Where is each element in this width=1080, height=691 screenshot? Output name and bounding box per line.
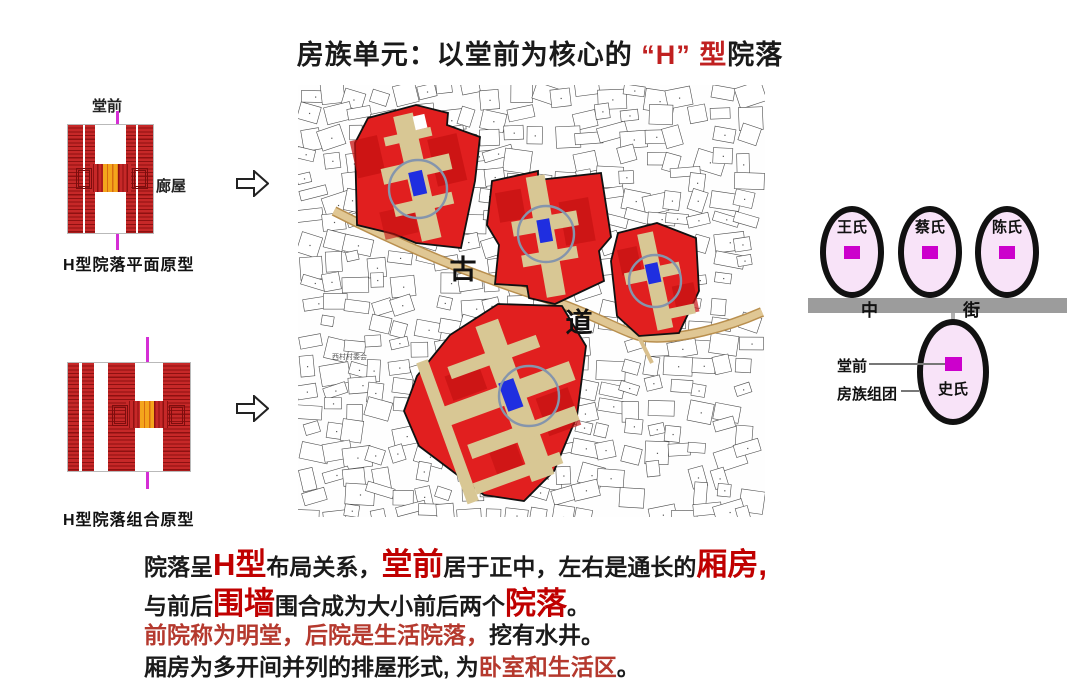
- text-segment: 院落: [727, 40, 783, 70]
- right-arrow-icon: [236, 395, 269, 422]
- cadastral-map: 古 道 西村村委会: [298, 85, 765, 517]
- text-segment: 房族单元：以堂前为核心的: [297, 40, 633, 70]
- text-segment: 厢房为多开间并列的排屋形式, 为: [144, 654, 479, 680]
- hall-bar: [126, 401, 168, 428]
- clan-name: 陈氏: [975, 216, 1039, 237]
- page-title: 房族单元：以堂前为核心的 “H” 型院落: [0, 33, 1080, 72]
- right-arrow-icon: [236, 170, 269, 197]
- text-segment: 厢房,: [696, 547, 767, 582]
- map-label-village-committee: 西村村委会: [332, 352, 367, 361]
- clan-name: 王氏: [820, 216, 884, 237]
- h-plan-diagram: [68, 125, 153, 233]
- roof-strip: [82, 363, 94, 471]
- text-segment: 。: [617, 654, 640, 680]
- hall-square-marker: [945, 357, 962, 371]
- spiral-motif: [169, 405, 185, 426]
- clan-name: 史氏: [917, 378, 989, 399]
- street-char-zhong: 中: [861, 296, 878, 321]
- hall-square-marker: [922, 246, 938, 259]
- text-segment: H型: [213, 547, 266, 582]
- street-char-jie: 街: [963, 296, 980, 321]
- slide: 房族单元：以堂前为核心的 “H” 型院落 堂前 廊屋 H型院落平面原型 H型院落…: [0, 0, 1080, 691]
- h-combo-diagram: [68, 363, 190, 471]
- clan-name: 蔡氏: [898, 216, 962, 237]
- body-text-line-3: 前院称为明堂，后院是生活院落，挖有水井。: [144, 616, 604, 650]
- text-segment: 居于正中，左右是通长的: [443, 554, 696, 580]
- text-segment: 院落呈: [144, 554, 213, 580]
- clan-ellipse-shi: [917, 319, 989, 425]
- clan-diagram: 王氏 蔡氏 陈氏 中 街 史氏 堂前 房族组团: [795, 185, 1080, 445]
- pointer-line: [869, 363, 945, 365]
- hall-core: [103, 164, 118, 192]
- text-segment: 前院称为明堂，后院是生活院落，: [144, 622, 489, 648]
- text-segment: 布局关系，: [266, 554, 381, 580]
- text-segment: 挖有水井。: [489, 622, 604, 648]
- map-cluster-2: [487, 168, 611, 304]
- body-text-line-4: 厢房为多开间并列的排屋形式, 为卧室和生活区。: [144, 648, 640, 682]
- map-label-gu: 古: [450, 255, 477, 285]
- caption-combo-prototype: H型院落组合原型: [63, 506, 195, 530]
- hall-bar: [90, 164, 131, 192]
- caption-plan-prototype: H型院落平面原型: [63, 251, 195, 275]
- corridor-label: 廊屋: [156, 175, 186, 196]
- text-segment: 堂前: [381, 547, 443, 582]
- pointer-line: [901, 390, 919, 392]
- spiral-motif: [76, 168, 92, 189]
- cluster-pointer-label: 房族组团: [837, 383, 897, 404]
- text-segment: “H” 型: [633, 40, 728, 70]
- middle-street-bar: [808, 298, 1067, 313]
- hall-core: [140, 401, 154, 428]
- map-label-dao: 道: [566, 307, 593, 338]
- spiral-motif: [112, 405, 128, 426]
- hall-square-marker: [844, 246, 860, 259]
- spiral-motif: [132, 168, 148, 189]
- hall-square-marker: [999, 246, 1015, 259]
- roof-strip: [68, 363, 79, 471]
- text-segment: 卧室和生活区: [479, 654, 617, 680]
- hall-pointer-label: 堂前: [837, 355, 867, 376]
